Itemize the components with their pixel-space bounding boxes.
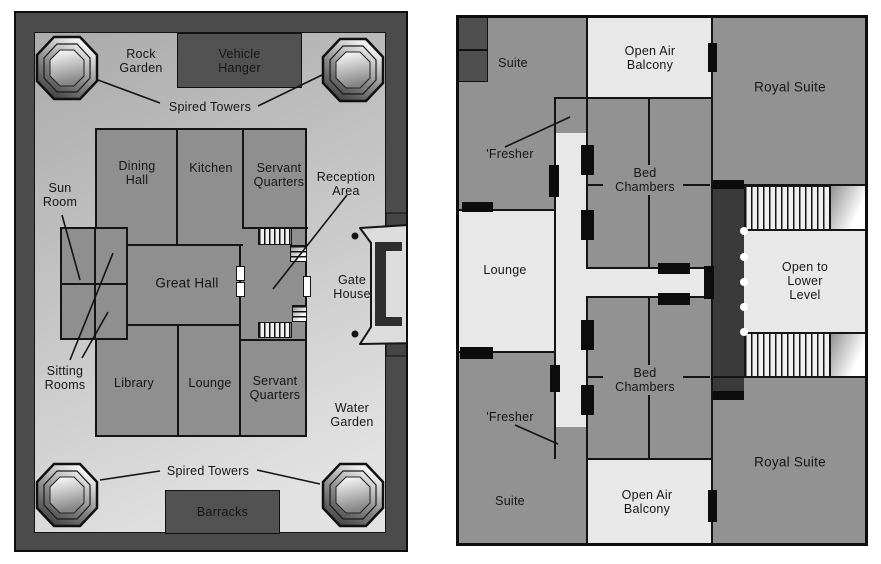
room-barracks: Barracks — [165, 490, 280, 534]
room-label-bed-chambers-south: Bed Chambers — [611, 365, 679, 395]
wall — [829, 184, 831, 231]
room-label-library: Library — [114, 376, 154, 390]
wall — [239, 339, 307, 341]
room-label-bed-chambers-north: Bed Chambers — [611, 165, 679, 195]
room-label-rock-garden: Rock Garden — [119, 47, 162, 75]
door — [658, 263, 690, 274]
wall — [744, 332, 868, 334]
gallery-corridor — [713, 180, 744, 400]
door — [581, 210, 594, 240]
wall — [176, 128, 178, 245]
door — [550, 365, 560, 392]
door — [581, 385, 594, 415]
room-label-servant-quarters-south: Servant Quarters — [250, 374, 301, 402]
room-label-servant-quarters-north: Servant Quarters — [254, 161, 305, 189]
staircase — [258, 322, 292, 338]
staircase — [290, 245, 307, 262]
staircase — [744, 333, 830, 377]
wall-dash — [683, 184, 710, 186]
wall — [711, 376, 868, 378]
wall — [829, 332, 831, 378]
door — [460, 347, 493, 359]
room-label-open-air-balcony-north: Open Air Balcony — [625, 44, 676, 72]
door — [581, 320, 594, 350]
wall — [242, 227, 308, 229]
callout-label-spired-towers-bottom: Spired Towers — [167, 464, 249, 478]
room-label-water-garden: Water Garden — [330, 401, 373, 429]
door — [658, 293, 690, 305]
great-hall-door — [236, 266, 245, 281]
wall — [586, 97, 588, 269]
wall — [177, 324, 179, 437]
room-label-royal-suite-north: Royal Suite — [754, 79, 826, 94]
room-label-open-air-balcony-south: Open Air Balcony — [622, 488, 673, 516]
staircase — [292, 305, 307, 322]
stair-landing — [830, 333, 868, 377]
corridor-end-wall — [713, 180, 744, 189]
callout-label-spired-towers-top: Spired Towers — [169, 100, 251, 114]
spired-tower-icon — [321, 462, 385, 528]
spired-tower-icon — [35, 35, 99, 101]
callout-label-reception-area: Reception Area — [317, 170, 376, 198]
wall — [586, 458, 588, 546]
room-label-kitchen: Kitchen — [189, 161, 232, 175]
wall — [128, 324, 240, 326]
room-label-suite-south: Suite — [495, 494, 525, 508]
room-lounge — [456, 211, 555, 351]
room-label-lounge: Lounge — [483, 263, 526, 277]
door — [581, 145, 594, 175]
stair-landing — [830, 186, 868, 230]
room-vehicle-hanger: Vehicle Hanger — [177, 33, 302, 88]
wall-dash — [683, 376, 710, 378]
wall-dash — [588, 376, 603, 378]
callout-label-fresher-south: 'Fresher — [486, 410, 533, 424]
wall — [554, 97, 556, 459]
room-label-vehicle-hanger: Vehicle Hanger — [218, 47, 261, 75]
wall — [94, 227, 96, 340]
callout-label-fresher-north: 'Fresher — [486, 147, 533, 161]
wall — [744, 229, 868, 231]
callout-label-sitting-rooms: Sitting Rooms — [45, 364, 86, 392]
room-label-suite-north: Suite — [498, 56, 528, 70]
room-label-open-to-lower-level: Open to Lower Level — [774, 260, 837, 302]
wall — [555, 97, 712, 99]
room-label-sun-room: Sun Room — [43, 181, 77, 209]
reception-door — [303, 276, 311, 297]
door — [704, 266, 714, 299]
door — [708, 490, 717, 522]
room-fresher-north — [456, 15, 488, 50]
door — [708, 43, 717, 72]
great-hall-door — [236, 282, 245, 297]
door — [462, 202, 493, 212]
spired-tower-icon — [321, 37, 385, 103]
wall — [128, 244, 243, 246]
room-fresher-south — [456, 50, 488, 82]
wall-dash — [588, 184, 603, 186]
room-label-great-hall: Great Hall — [155, 275, 218, 290]
room-label-royal-suite-south: Royal Suite — [754, 454, 826, 469]
upper-level-plan: Suite Open Air Balcony Royal Suite 'Fres… — [456, 15, 868, 546]
floor-plan-canvas: Vehicle Hanger Barracks Rock Garden Spir… — [0, 0, 881, 564]
staircase — [258, 228, 292, 245]
wall — [586, 458, 712, 460]
staircase — [744, 186, 830, 230]
main-level-plan: Vehicle Hanger Barracks Rock Garden Spir… — [14, 11, 408, 552]
spired-tower-icon — [35, 462, 99, 528]
room-label-dining-hall: Dining Hall — [119, 159, 156, 187]
door — [549, 165, 559, 197]
corridor-end-wall — [713, 391, 744, 400]
room-label-barracks: Barracks — [197, 505, 248, 519]
wall — [242, 128, 244, 228]
hallway-vertical — [556, 133, 587, 427]
room-label-lounge: Lounge — [188, 376, 231, 390]
room-label-gate-house: Gate House — [333, 273, 370, 301]
wall — [586, 15, 588, 98]
